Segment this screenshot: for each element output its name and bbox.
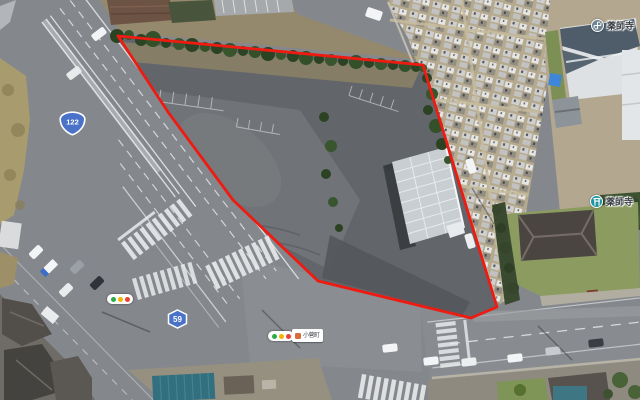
red-light-dot: [286, 334, 291, 339]
temple-manji-icon: [591, 19, 604, 32]
shrine-name-text: 薬師寺: [606, 195, 633, 208]
red-light-dot: [125, 297, 130, 302]
traffic-signal-icon: [107, 294, 133, 304]
shrine-place-label[interactable]: 薬師寺: [590, 195, 633, 208]
yellow-light-dot: [279, 334, 284, 339]
building-green-roof: [168, 0, 216, 23]
street-name-label[interactable]: 小菅町: [292, 329, 323, 342]
temple-name-text: 薬師寺: [607, 19, 634, 32]
route-59-number: 59: [173, 315, 182, 324]
route-122-badge: 122: [59, 111, 86, 136]
street-name-text: 小菅町: [303, 333, 320, 339]
teal-building: [152, 373, 215, 400]
route-59-badge: 59: [167, 309, 188, 329]
house-dark-roof: [518, 210, 597, 261]
poi-dot-icon: [295, 333, 301, 339]
map-viewport[interactable]: 122 59 小菅町 薬師寺 薬師寺: [0, 0, 640, 400]
white-structure: [0, 221, 22, 250]
teal-roof: [553, 386, 587, 400]
traffic-signal-icon: [268, 331, 294, 341]
blue-tarp: [548, 73, 562, 87]
shed-roof: [224, 375, 255, 395]
yellow-light-dot: [118, 297, 123, 302]
green-light-dot: [111, 297, 116, 302]
temple-place-label[interactable]: 薬師寺: [591, 19, 634, 32]
shrine-torii-icon: [590, 195, 603, 208]
green-light-dot: [272, 334, 277, 339]
route-122-number: 122: [66, 118, 79, 127]
white-building: [622, 50, 640, 140]
